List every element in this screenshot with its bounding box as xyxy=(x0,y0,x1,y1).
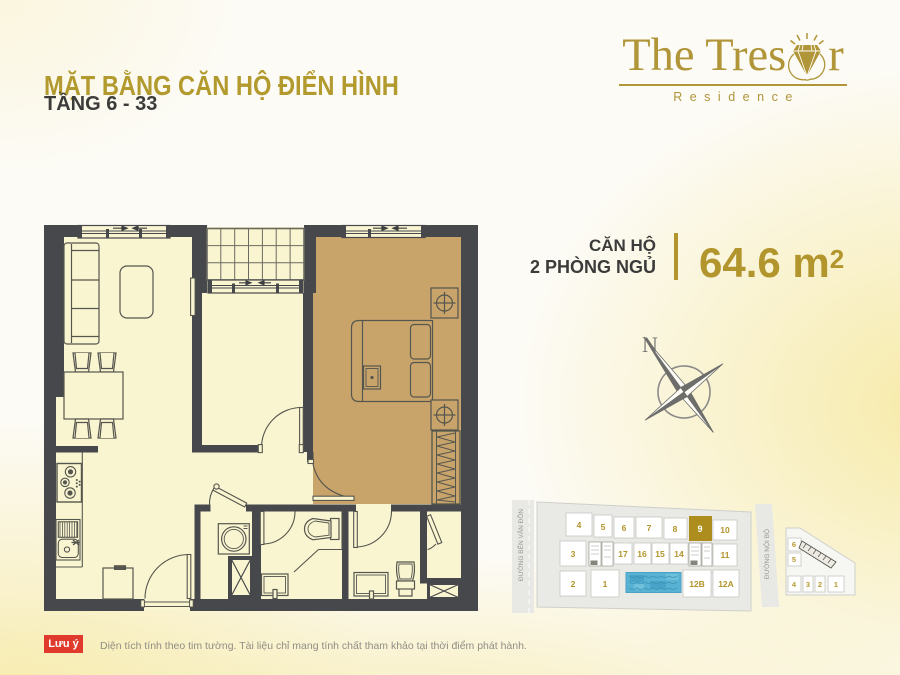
svg-text:14: 14 xyxy=(674,549,684,559)
svg-text:10: 10 xyxy=(720,525,730,535)
svg-text:15: 15 xyxy=(655,549,665,559)
svg-text:16: 16 xyxy=(637,549,647,559)
svg-text:2: 2 xyxy=(818,580,822,589)
svg-text:12A: 12A xyxy=(718,579,734,589)
svg-text:6: 6 xyxy=(792,540,796,549)
svg-text:17: 17 xyxy=(618,549,628,559)
svg-text:N: N xyxy=(642,332,658,357)
svg-text:5: 5 xyxy=(601,522,606,532)
svg-text:ĐƯỜNG NỘI BỘ: ĐƯỜNG NỘI BỘ xyxy=(762,529,771,579)
svg-text:11: 11 xyxy=(721,550,730,560)
svg-text:3: 3 xyxy=(571,549,576,559)
svg-text:6: 6 xyxy=(622,523,627,533)
svg-text:2: 2 xyxy=(571,579,576,589)
svg-text:1: 1 xyxy=(834,580,838,589)
svg-text:3: 3 xyxy=(806,580,810,589)
svg-text:4: 4 xyxy=(577,520,582,530)
svg-text:12B: 12B xyxy=(689,579,705,589)
svg-text:7: 7 xyxy=(647,523,652,533)
svg-text:1: 1 xyxy=(603,579,608,589)
svg-text:5: 5 xyxy=(792,555,796,564)
svg-text:8: 8 xyxy=(673,524,678,534)
svg-text:9: 9 xyxy=(697,524,702,534)
